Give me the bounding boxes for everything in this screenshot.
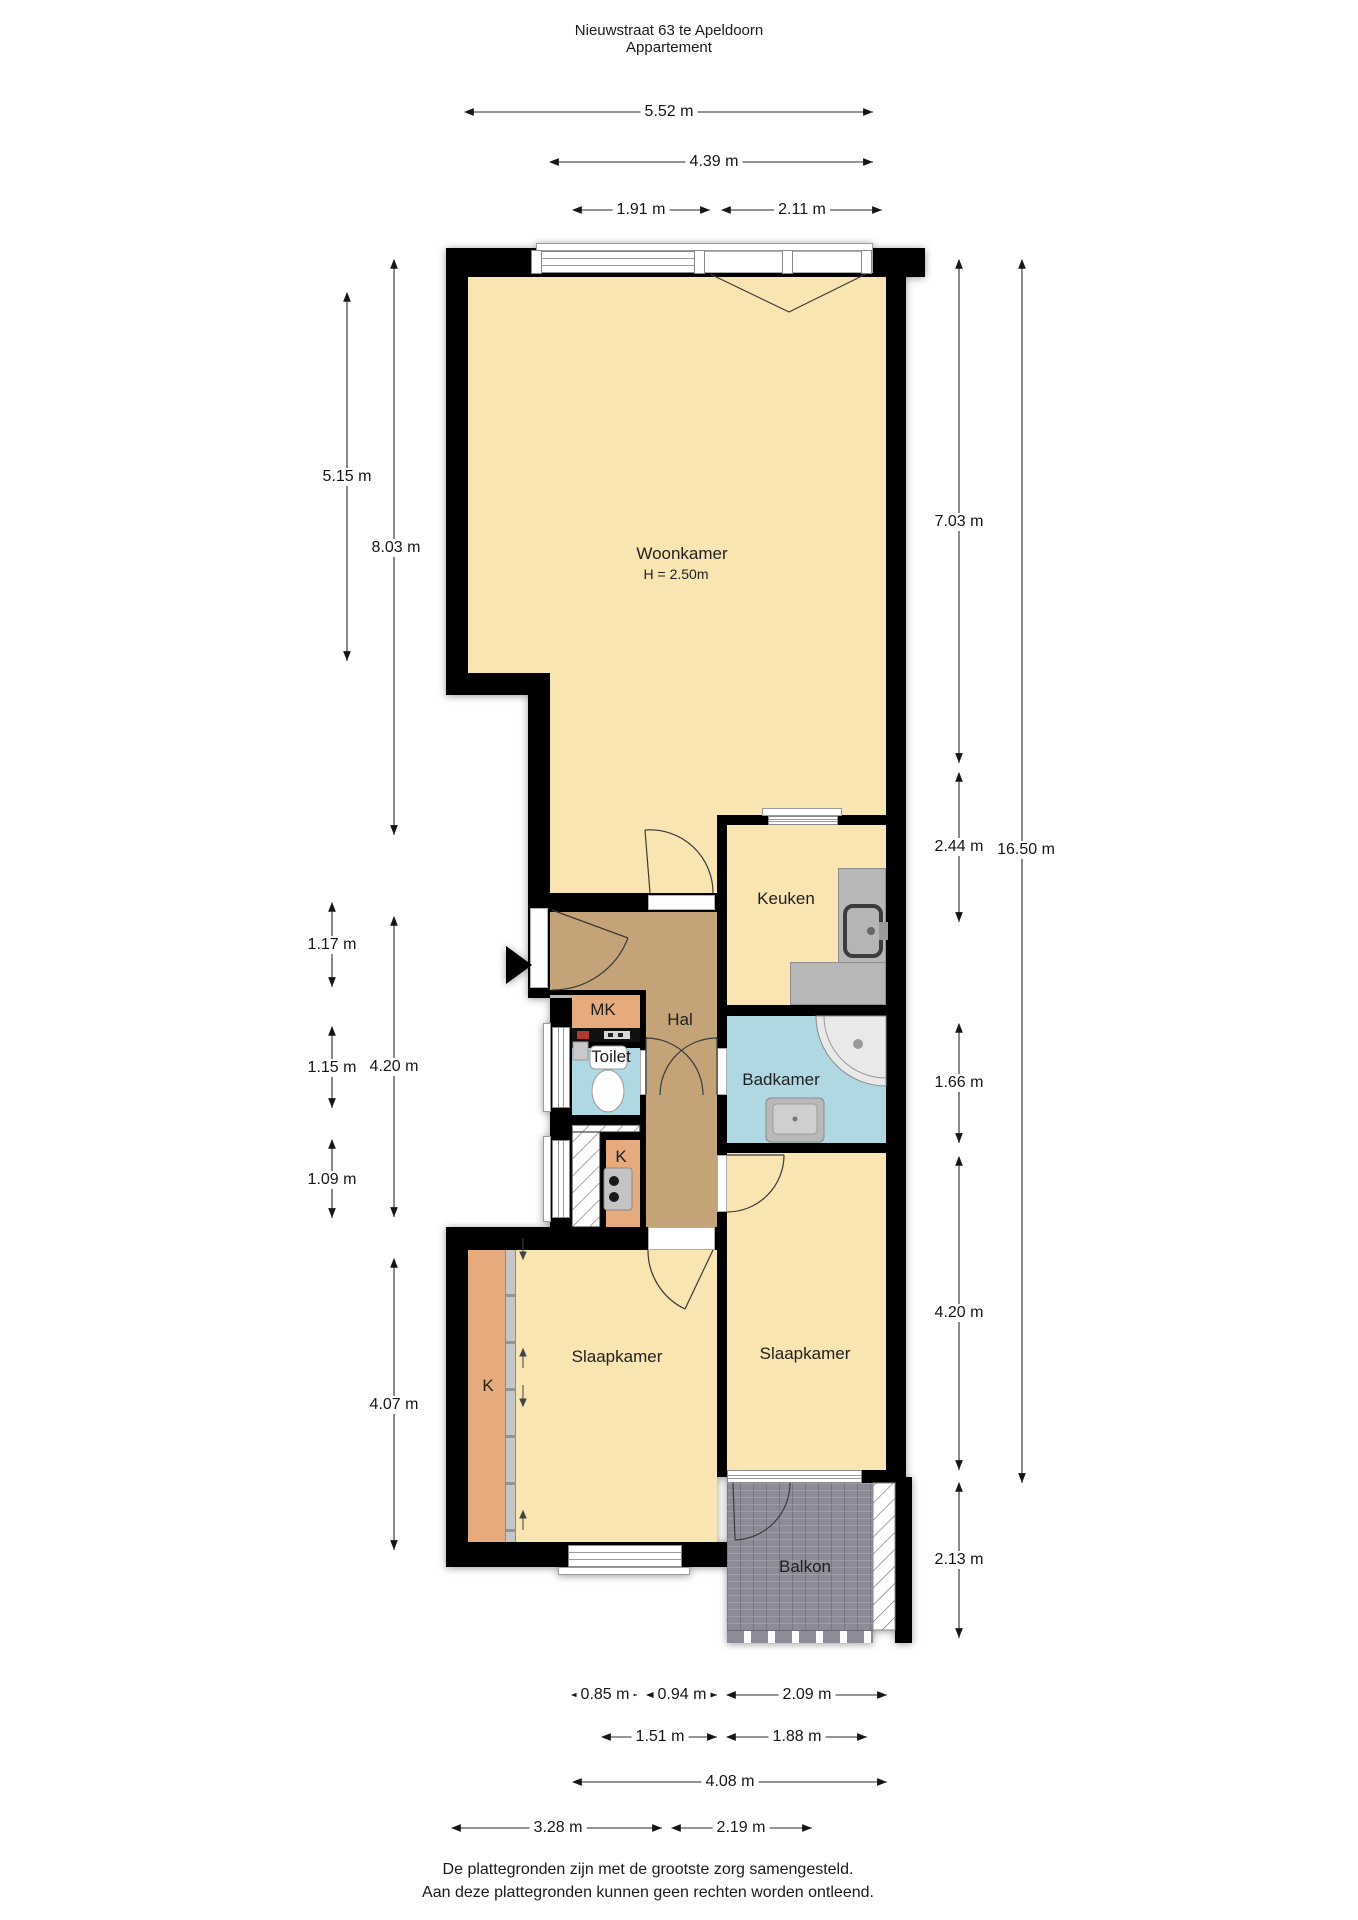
dim-label-bottom-7: 2.19 m [713,1819,770,1837]
dim-label-bottom-6: 3.28 m [530,1819,587,1837]
woonkamer-floor [550,673,886,815]
window-jamb [531,250,542,274]
dim-label-left-2: 1.17 m [304,936,361,954]
dim-label-bottom-4: 1.88 m [769,1728,826,1746]
wall-kast-klein-top [600,1132,640,1140]
dim-label-left-4: 1.09 m [304,1171,361,1189]
dim-label-right-5: 2.13 m [931,1551,988,1569]
dim-label-left-5: 4.20 m [366,1058,423,1076]
wall-toilet-bottom [572,1115,640,1125]
room-label-slaapkamer-rechts: Slaapkamer [760,1344,851,1364]
room-label-keuken: Keuken [757,889,815,909]
dim-label-left-0: 5.15 m [319,468,376,486]
disclaimer: De plattegronden zijn met de grootste zo… [422,1858,874,1904]
wall-badkamer-bottom [717,1143,906,1153]
room-label-balkon: Balkon [779,1557,831,1577]
dim-label-top-2: 1.91 m [613,201,670,219]
dim-label-right-3: 1.66 m [931,1074,988,1092]
woonkamer-door-opening [648,895,715,910]
window-sill [543,1136,551,1222]
room-label-mk: MK [590,1000,616,1020]
dim-label-bottom-0: 0.85 m [577,1686,634,1704]
wall-badkamer-top [717,1005,906,1016]
wall-hal-left-column [640,990,646,1227]
toilet-door-opening [640,1050,646,1095]
dim-label-left-1: 8.03 m [368,539,425,557]
floorplan [0,0,1358,1920]
window-top [536,251,700,273]
room-height-note: H = 2.50m [644,566,709,582]
dim-label-bottom-1: 0.94 m [654,1686,711,1704]
room-label-kast-klein: K [615,1147,626,1167]
balkon-edge [727,1630,873,1643]
room-label-toilet: Toilet [591,1047,631,1067]
window-jamb [782,250,793,274]
woonkamer-floor [468,277,886,673]
balkon-door-frame [727,1470,862,1483]
window-jamb [694,250,705,274]
sliding-door [505,1250,516,1542]
window-sill [558,1567,690,1575]
dim-label-top-3: 2.11 m [774,201,830,219]
dim-label-right-2: 16.50 m [993,841,1059,859]
window-hal-left [552,1027,570,1108]
dim-label-top-0: 5.52 m [641,103,698,121]
slaapkamer-rechts-door-opening [717,1155,727,1212]
wall-balkon-right [895,1477,912,1643]
dim-label-bottom-5: 4.08 m [702,1773,759,1791]
dim-label-right-4: 4.20 m [931,1304,988,1322]
kast-floor [468,1250,505,1542]
page-title-block: Nieuwstraat 63 te Apeldoorn Appartement [575,22,763,56]
page-subtitle: Appartement [575,39,763,56]
wall-right [886,255,906,1483]
meter-cabinet [572,1028,640,1042]
room-label-woonkamer: Woonkamer [636,544,727,564]
dim-label-left-3: 1.15 m [304,1059,361,1077]
room-label-badkamer: Badkamer [742,1070,819,1090]
disclaimer-line-1: De plattegronden zijn met de grootste zo… [422,1858,874,1881]
room-label-hal: Hal [667,1010,693,1030]
window-keuken [768,816,838,825]
slaapkamer-links-floor [516,1250,717,1542]
wall-balkon-top-right [862,1470,895,1483]
dim-label-bottom-3: 1.51 m [632,1728,689,1746]
slaapkamer-links-door-opening [648,1227,715,1250]
slaapkamer-rechts-floor [727,1153,886,1470]
wall-kast-klein-left [600,1140,606,1227]
entrance-door-opening [530,908,548,988]
dim-label-left-6: 4.07 m [366,1396,423,1414]
page-title: Nieuwstraat 63 te Apeldoorn [575,22,763,39]
wall-left [446,248,468,695]
window-sill [762,808,842,816]
woonkamer-floor [550,815,717,893]
dim-label-bottom-2: 2.09 m [779,1686,836,1704]
room-label-kast: K [482,1376,493,1396]
wall-left-bottom [446,1227,468,1567]
window-slaapkamer [568,1545,682,1567]
window-jamb [861,250,872,274]
kitchen-counter [790,962,886,1005]
room-label-slaapkamer-links: Slaapkamer [572,1347,663,1367]
dim-label-right-0: 7.03 m [931,513,988,531]
disclaimer-line-2: Aan deze plattegronden kunnen geen recht… [422,1881,874,1904]
window-hal-left [552,1140,570,1218]
badkamer-door-opening [717,1048,727,1095]
window-sill [543,1023,551,1112]
wall-mk-top [550,990,646,995]
hal-floor [550,912,717,995]
dim-label-top-1: 4.39 m [686,153,743,171]
dim-label-right-1: 2.44 m [931,838,988,856]
